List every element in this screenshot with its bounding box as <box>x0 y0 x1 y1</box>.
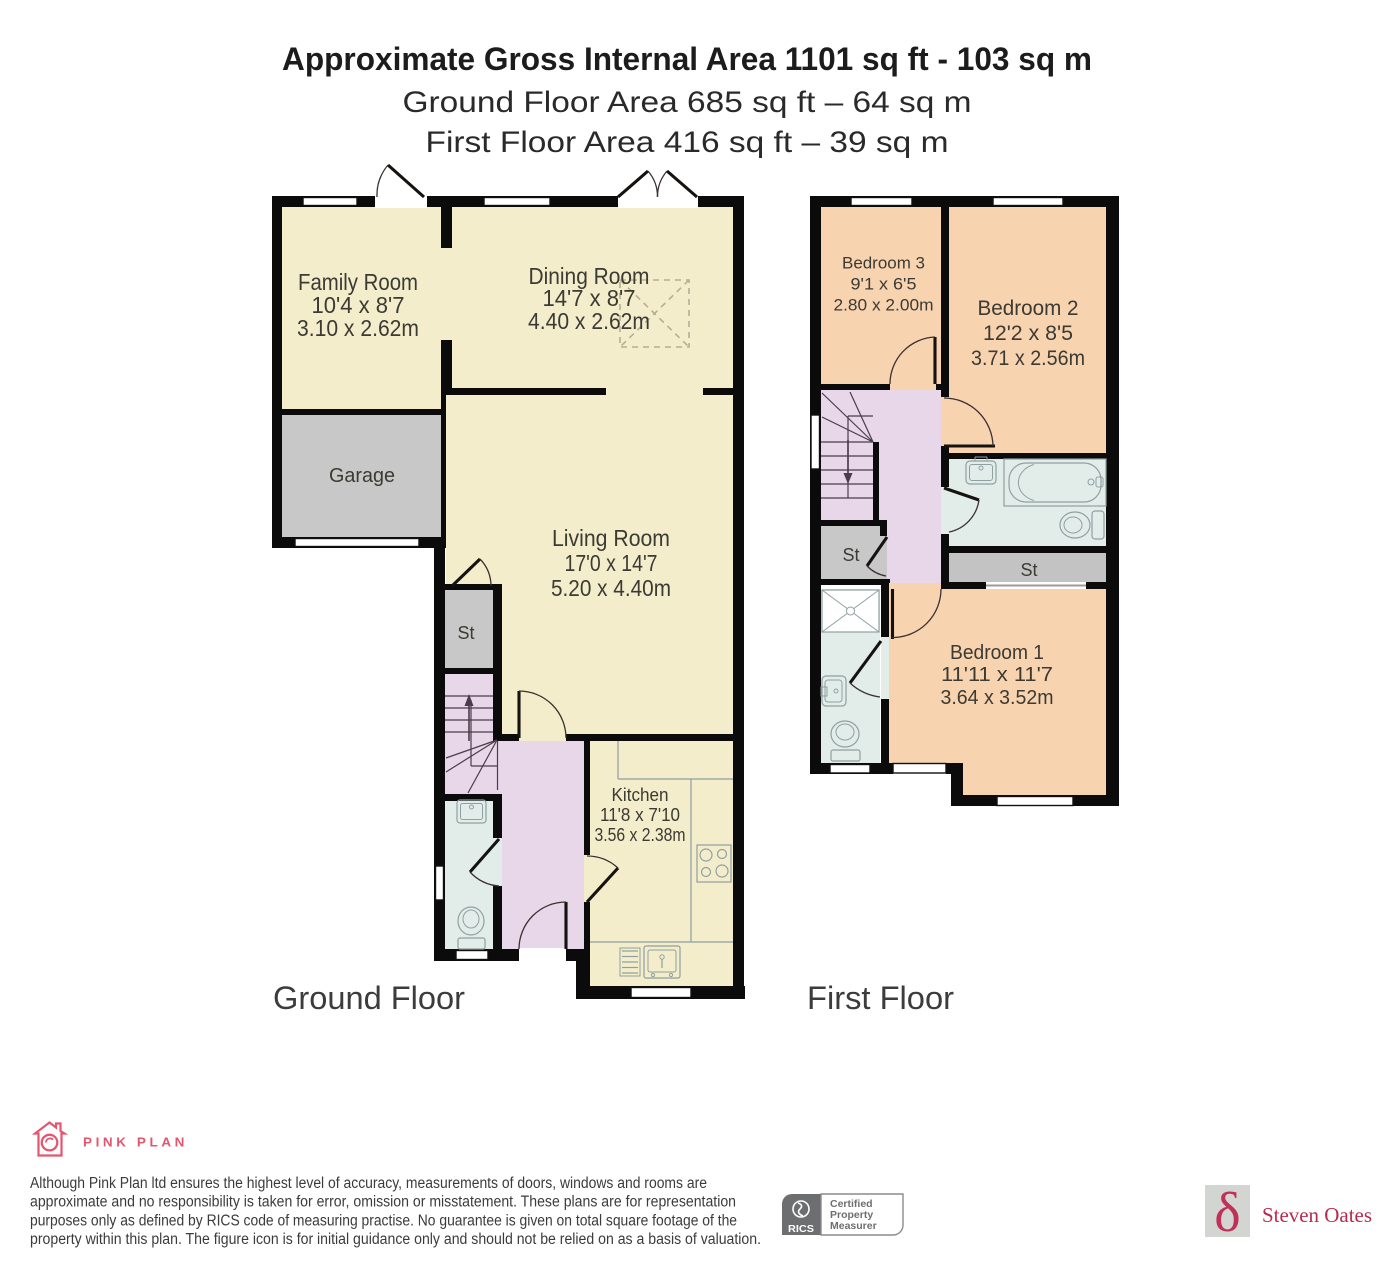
svg-text:3.71 x 2.56m: 3.71 x 2.56m <box>971 347 1085 370</box>
svg-text:3.64 x 3.52m: 3.64 x 3.52m <box>941 687 1054 709</box>
svg-text:purposes only as defined by RI: purposes only as defined by RICS code of… <box>30 1212 737 1229</box>
svg-text:Steven Oates: Steven Oates <box>1262 1203 1372 1227</box>
svg-text:St: St <box>1020 560 1037 580</box>
svg-text:Bedroom 3: Bedroom 3 <box>842 254 925 273</box>
svg-text:4.40 x 2.62m: 4.40 x 2.62m <box>528 308 650 334</box>
svg-text:Bedroom 2: Bedroom 2 <box>978 297 1079 320</box>
svg-text:approximate and no responsibil: approximate and no responsibility is tak… <box>30 1194 736 1211</box>
svg-text:Bedroom 1: Bedroom 1 <box>950 642 1044 664</box>
svg-text:12'2 x 8'5: 12'2 x 8'5 <box>983 322 1073 345</box>
svg-text:5.20 x 4.40m: 5.20 x 4.40m <box>551 575 671 601</box>
svg-text:2.80 x 2.00m: 2.80 x 2.00m <box>834 296 934 315</box>
svg-text:St: St <box>842 545 859 565</box>
svg-text:RICS: RICS <box>788 1224 814 1235</box>
svg-text:Living Room: Living Room <box>552 525 670 551</box>
svg-text:Kitchen: Kitchen <box>612 785 669 805</box>
svg-text:11'11 x 11'7: 11'11 x 11'7 <box>941 664 1053 686</box>
svg-text:δ: δ <box>1214 1182 1240 1244</box>
svg-text:St: St <box>457 623 474 643</box>
svg-text:3.10 x 2.62m: 3.10 x 2.62m <box>297 315 419 341</box>
svg-text:Ground Floor: Ground Floor <box>273 980 465 1016</box>
svg-text:Measurer: Measurer <box>830 1220 877 1232</box>
svg-text:property within this plan. The: property within this plan. The figure ic… <box>30 1231 761 1248</box>
svg-text:Although Pink Plan ltd ensures: Although Pink Plan ltd ensures the highe… <box>30 1175 707 1192</box>
svg-text:Approximate Gross Internal Are: Approximate Gross Internal Area 1101 sq … <box>282 41 1092 77</box>
svg-text:17'0 x 14'7: 17'0 x 14'7 <box>565 550 658 576</box>
svg-text:First Floor Area 416 sq ft – 3: First Floor Area 416 sq ft – 39 sq m <box>426 126 949 159</box>
svg-text:First Floor: First Floor <box>807 980 954 1016</box>
svg-text:9'1 x 6'5: 9'1 x 6'5 <box>851 275 917 294</box>
svg-text:PINK PLAN: PINK PLAN <box>83 1135 188 1150</box>
svg-text:Garage: Garage <box>329 465 395 487</box>
svg-text:Ground Floor Area 685 sq ft –: Ground Floor Area 685 sq ft – 64 sq m <box>403 86 972 119</box>
svg-text:11'8 x 7'10: 11'8 x 7'10 <box>600 805 680 825</box>
svg-text:3.56 x 2.38m: 3.56 x 2.38m <box>595 825 686 845</box>
